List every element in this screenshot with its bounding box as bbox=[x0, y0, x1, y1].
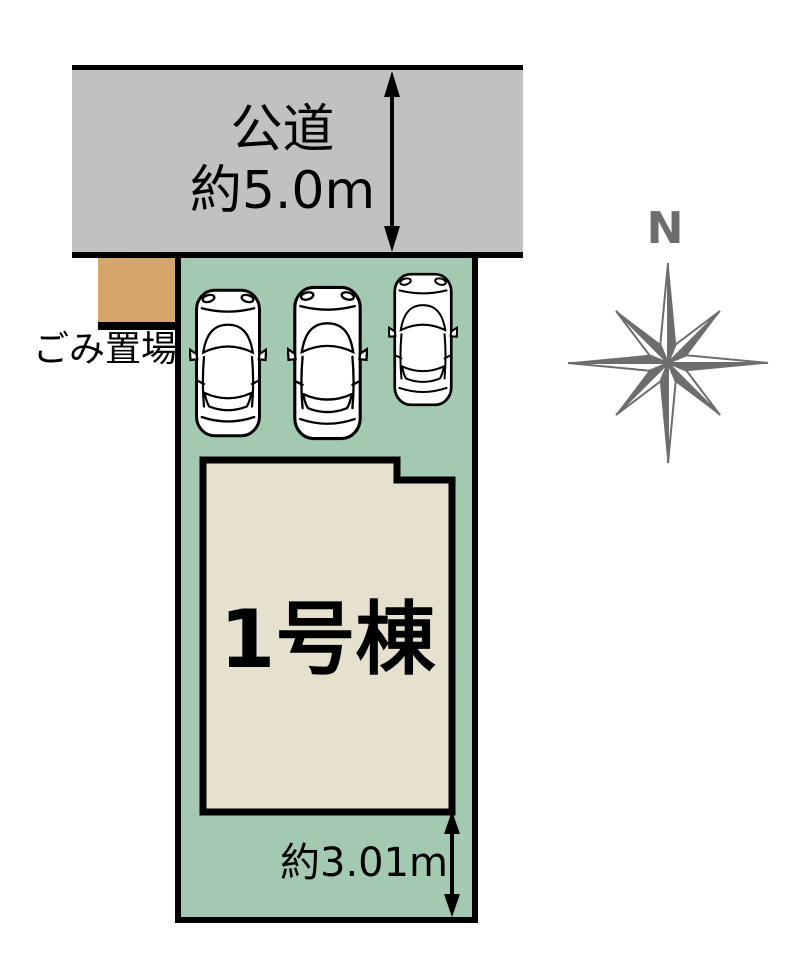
compass-rose-icon bbox=[565, 260, 771, 466]
building-label: 1号棟 bbox=[203, 597, 452, 683]
road-width-label: 約5.0m bbox=[72, 161, 493, 222]
site-plan: 公道 約5.0m ごみ置場 1号棟 約3.01m N bbox=[0, 0, 800, 977]
car-icon bbox=[388, 261, 458, 418]
car-icon bbox=[189, 272, 267, 454]
road-label-block: 公道 約5.0m bbox=[72, 100, 493, 222]
road-width-arrow-icon bbox=[377, 70, 407, 253]
road-name-label: 公道 bbox=[72, 100, 493, 161]
compass-north-label: N bbox=[625, 206, 705, 252]
south-dimension-label: 約3.01m bbox=[280, 842, 445, 884]
garbage-label: ごみ置場 bbox=[33, 331, 177, 369]
road-area: 公道 約5.0m bbox=[72, 65, 523, 258]
garbage-area bbox=[98, 258, 178, 330]
car-icon bbox=[287, 272, 368, 454]
